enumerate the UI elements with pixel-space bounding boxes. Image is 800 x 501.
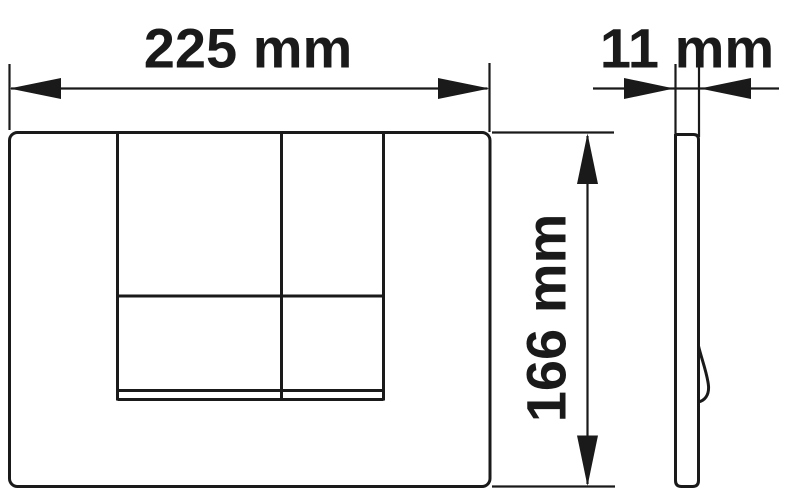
dimension-width: 225 mm (10, 17, 490, 133)
technical-drawing-canvas: 225 mm 11 mm 166 mm (0, 0, 800, 501)
depth-arrow-left-icon (624, 78, 674, 99)
mounting-clip-bump (699, 346, 709, 402)
side-view (676, 135, 709, 487)
width-arrow-right-icon (438, 78, 490, 99)
height-dimension-label: 166 mm (515, 214, 578, 423)
width-arrow-left-icon (10, 78, 62, 99)
width-dimension-label: 225 mm (144, 17, 353, 80)
height-arrow-bottom-icon (577, 436, 598, 487)
side-profile-outline (676, 135, 699, 487)
depth-arrow-right-icon (700, 78, 751, 99)
button-grid-lines (118, 133, 384, 401)
dimension-depth: 11 mm (593, 17, 779, 138)
dimension-height: 166 mm (492, 133, 615, 487)
plate-outline (10, 133, 491, 487)
front-view (10, 133, 491, 487)
depth-dimension-label: 11 mm (600, 17, 774, 80)
flush-plate-dimension-drawing: 225 mm 11 mm 166 mm (0, 0, 800, 501)
height-arrow-top-icon (577, 134, 598, 185)
